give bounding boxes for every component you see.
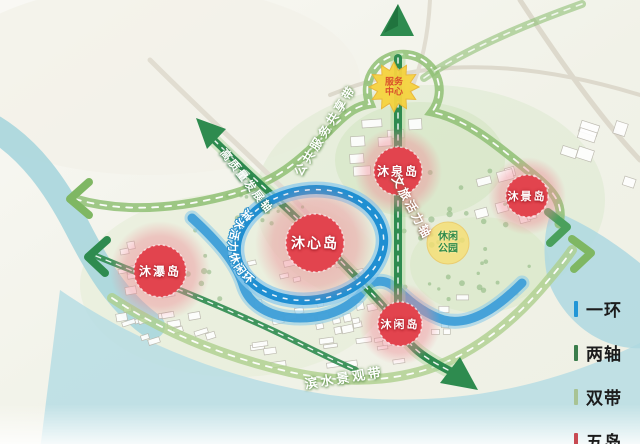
legend-label-belts: 双带 <box>586 384 622 409</box>
legend-label-axes: 两轴 <box>586 340 622 365</box>
island-muquan-marker <box>374 147 422 195</box>
legend-swatch-islands <box>574 433 578 444</box>
legend-swatch-axes <box>574 345 578 361</box>
island-muxian-marker <box>378 302 422 346</box>
legend-label-ring: 一环 <box>586 296 622 321</box>
map-canvas: 滨水活力休闲环 <box>0 0 640 444</box>
planning-map: 滨水活力休闲环 沐心岛 沐泉岛 沐景岛 沐瀑岛 沐闲岛 公共服务共享带 滨水景观… <box>0 0 640 444</box>
legend-item-ring: 一环 <box>574 296 622 321</box>
leisure-park-badge <box>427 222 469 264</box>
legend-label-islands: 五岛 <box>586 428 622 444</box>
island-mupu-marker <box>134 245 186 297</box>
island-muxin-marker <box>286 214 344 272</box>
bottom-fade <box>0 404 640 444</box>
legend-swatch-belts <box>574 389 578 405</box>
legend-item-axes: 两轴 <box>574 340 622 365</box>
legend: 一环 两轴 双带 五岛 <box>574 296 622 444</box>
legend-item-belts: 双带 <box>574 384 622 409</box>
island-mujing-marker <box>506 175 548 217</box>
legend-item-islands: 五岛 <box>574 428 622 444</box>
legend-swatch-ring <box>574 301 578 317</box>
